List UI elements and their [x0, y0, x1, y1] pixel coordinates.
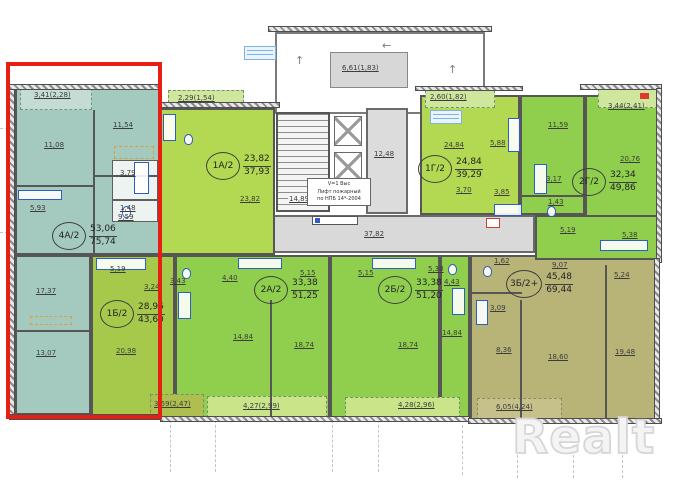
axis-line: [462, 425, 463, 475]
room-area-label: 5,24: [614, 272, 630, 279]
unit-badge-2b2[interactable]: 2Б/2 33,3851,20: [378, 276, 443, 304]
kitchen-counter-icon: [600, 240, 648, 251]
room-area-label: 8,36: [496, 347, 512, 354]
inner-wall: [605, 265, 607, 418]
outer-wall: [415, 86, 523, 91]
room-area-label: 19,48: [615, 349, 635, 356]
apartment-2g2-region-bottom[interactable]: [535, 215, 660, 260]
shaft-area-label: 6,61(1,83): [342, 64, 379, 72]
room-area-label: 5,19: [560, 227, 576, 234]
realt-watermark-logo: Realt: [512, 414, 655, 461]
annotation-callout: [244, 46, 276, 60]
annotation-callout: [430, 110, 462, 124]
unit-name: 2Б/2: [378, 276, 412, 304]
axis-line: [170, 420, 171, 472]
room-area-label: 5,88: [490, 140, 506, 147]
kitchen-counter-icon: [508, 118, 520, 152]
unit-badge-1a2[interactable]: 1А/2 23,8237,93: [206, 152, 271, 180]
outer-wall: [656, 88, 662, 263]
direction-arrow-icon: ↑: [448, 64, 457, 75]
apartment-1a2-region[interactable]: [160, 108, 275, 255]
room-area-label: 3,09: [490, 305, 506, 312]
room-area-label: 14,84: [233, 334, 253, 341]
unit-areas: 45,4869,44: [545, 272, 573, 296]
kitchen-counter-icon: [238, 258, 282, 269]
room-area-label: 3,44(2,41): [608, 103, 645, 110]
bathtub-icon: [178, 292, 191, 319]
unit-name: 2А/2: [254, 276, 288, 304]
unit-areas: 33,3851,20: [415, 278, 443, 302]
inner-wall: [520, 300, 522, 418]
corridor-area-label: 37,82: [364, 230, 384, 238]
toilet-icon: [547, 206, 556, 217]
floor-plan: ← ↑ ↑ 3,41(2,28) 11,08 5,93 11,54 3,79 1…: [0, 0, 690, 485]
outer-wall: [654, 258, 660, 422]
unit-name: 3Б/2+: [506, 270, 542, 298]
selection-highlight: [6, 62, 162, 419]
unit-areas: 32,3449,86: [609, 170, 637, 194]
toilet-icon: [483, 266, 492, 277]
room-area-label: 4,28(2,96): [398, 402, 435, 409]
room-area-label: 1,43: [548, 199, 564, 206]
room-area-label: 5,38: [428, 266, 444, 273]
room-area-label: 5,15: [358, 270, 374, 277]
room-area-label: 4,43: [444, 279, 460, 286]
unit-areas: 33,3851,25: [291, 278, 319, 302]
room-area-label: 24,84: [444, 142, 464, 149]
axis-line: [215, 420, 216, 472]
kitchen-counter-icon: [372, 258, 416, 269]
room-area-label: 3,43: [170, 278, 186, 285]
room-area-label: 4,40: [222, 275, 238, 282]
elevator-shaft-1: [334, 116, 362, 146]
room-area-label: 23,82: [240, 196, 260, 203]
toilet-icon: [448, 264, 457, 275]
unit-badge-2a2[interactable]: 2А/2 33,3851,25: [254, 276, 319, 304]
direction-arrow-icon: ←: [382, 40, 391, 51]
room-area-label: 18,60: [548, 354, 568, 361]
room-area-label: 3,70: [456, 187, 472, 194]
room-area-label: 14,84: [442, 330, 462, 337]
unit-badge-3b2[interactable]: 3Б/2+ 45,4869,44: [506, 270, 573, 298]
room-area-label: 3,17: [546, 176, 562, 183]
bathtub-icon: [476, 300, 488, 325]
unit-name: 1А/2: [206, 152, 240, 180]
room-area-label: 20,76: [620, 156, 640, 163]
direction-arrow-icon: ↑: [295, 55, 304, 66]
unit-badge-1g2[interactable]: 1Г/2 24,8439,29: [418, 155, 483, 183]
unit-areas: 23,8237,93: [243, 154, 271, 178]
elevator-note-line2: Лифт пожарный: [309, 189, 369, 197]
bathtub-icon: [494, 204, 522, 216]
room-area-label: 1,62: [494, 258, 510, 265]
outer-wall: [158, 102, 280, 108]
elevator-note-line1: V=1 Выс: [309, 181, 369, 189]
axis-line: [378, 420, 379, 472]
room-area-label: 4,27(2,99): [243, 403, 280, 410]
unit-name: 2Г/2: [572, 168, 606, 196]
outer-wall: [268, 26, 492, 32]
outer-wall: [160, 416, 470, 422]
inner-wall: [270, 300, 272, 418]
unit-name: 1Г/2: [418, 155, 452, 183]
room-area-label: 5,38: [622, 232, 638, 239]
bathtub-icon: [163, 114, 176, 141]
axis-line: [332, 420, 333, 472]
room-area-label: 2,29(1,54): [178, 95, 215, 102]
fire-cabinet-icon: [486, 218, 500, 228]
toilet-icon: [184, 134, 193, 145]
lift-lobby-region: [366, 108, 408, 214]
red-marker: [640, 93, 649, 99]
unit-badge-2g2[interactable]: 2Г/2 32,3449,86: [572, 168, 637, 196]
apartment-2g2-region-left[interactable]: [520, 95, 585, 215]
room-area-label: 2,60(1,82): [430, 94, 467, 101]
elevator-note: V=1 Выс Лифт пожарный по НПБ 14*-2004: [307, 178, 371, 206]
room-area-label: 11,59: [548, 122, 568, 129]
lobby-area-label: 12,48: [374, 150, 394, 158]
room-area-label: 18,74: [294, 342, 314, 349]
outer-wall: [580, 84, 662, 90]
room-area-label: 3,85: [494, 189, 510, 196]
room-area-label: 18,74: [398, 342, 418, 349]
unit-areas: 24,8439,29: [455, 157, 483, 181]
elevator-note-line3: по НПБ 14*-2004: [309, 196, 369, 204]
bathtub-icon: [452, 288, 465, 315]
electrical-panel-icon: [312, 216, 358, 225]
room-area-label: 9,07: [552, 262, 568, 269]
